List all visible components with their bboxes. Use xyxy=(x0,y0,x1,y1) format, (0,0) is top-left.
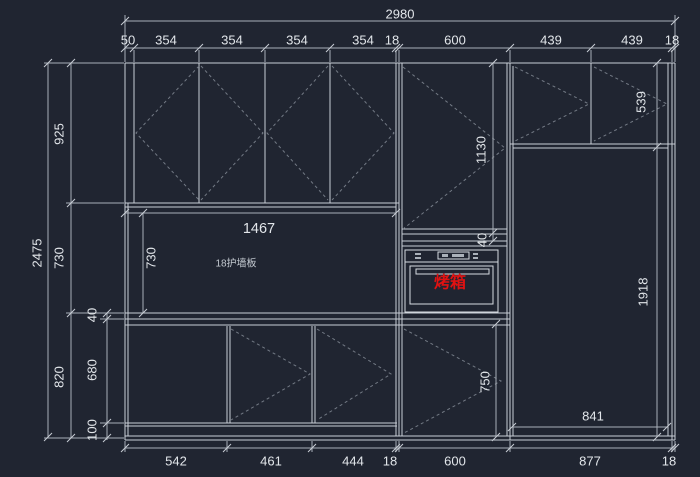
dim-left-100: 100 xyxy=(85,419,100,441)
oven-knob-left2 xyxy=(415,257,421,259)
dimension-lines xyxy=(44,15,679,452)
dim-bottom-461: 461 xyxy=(260,454,282,469)
dim-bottom-18-2: 18 xyxy=(662,454,676,469)
extension-lines xyxy=(44,15,675,452)
cabinet-outline xyxy=(125,63,675,440)
dim-bottom-542: 542 xyxy=(165,454,187,469)
dim-lines xyxy=(48,21,675,448)
oven-display-segment2 xyxy=(452,254,464,257)
dim-left-730: 730 xyxy=(52,247,67,269)
dim-left-40: 40 xyxy=(85,308,100,322)
dimension-labels: 2980 50 354 354 354 354 18 600 439 439 1… xyxy=(30,7,680,469)
oven-display-segment xyxy=(442,254,448,257)
dim-back-panel-width: 1467 xyxy=(243,221,275,237)
dim-top-354-3: 354 xyxy=(286,33,308,48)
cad-drawing: 2980 50 354 354 354 354 18 600 439 439 1… xyxy=(0,0,700,477)
dim-left-total: 2475 xyxy=(30,239,45,268)
dim-gap-40: 40 xyxy=(475,233,490,247)
dim-top-439-1: 439 xyxy=(540,33,562,48)
dim-total-width: 2980 xyxy=(386,7,415,22)
cabinet-structure xyxy=(125,63,675,440)
dimension-ticks xyxy=(44,17,679,452)
dim-base-right-750: 750 xyxy=(478,371,493,393)
oven-handle xyxy=(416,269,489,274)
dim-back-panel-height: 730 xyxy=(144,247,159,269)
dim-left-925: 925 xyxy=(52,123,67,145)
dim-tall-door: 1130 xyxy=(474,136,489,164)
dim-left-820: 820 xyxy=(52,366,67,388)
dim-upper-right-539: 539 xyxy=(634,91,649,113)
dim-top-354-1: 354 xyxy=(155,33,177,48)
dim-top-354-4: 354 xyxy=(352,33,374,48)
dim-top-600: 600 xyxy=(444,33,466,48)
dim-top-354-2: 354 xyxy=(221,33,243,48)
dim-top-18-2: 18 xyxy=(665,33,679,48)
dim-top-50: 50 xyxy=(121,33,135,48)
dim-bottom-444: 444 xyxy=(342,454,364,469)
dim-inner-width-841: 841 xyxy=(582,409,604,424)
label-oven: 烤箱 xyxy=(434,273,466,292)
dim-left-680: 680 xyxy=(85,359,100,381)
dim-top-439-2: 439 xyxy=(621,33,643,48)
label-wall-panel: 18护墙板 xyxy=(215,257,256,270)
oven-knob-right xyxy=(473,253,478,255)
dim-bottom-600: 600 xyxy=(444,454,466,469)
dim-bottom-18-1: 18 xyxy=(383,454,397,469)
dim-tall-right-1918: 1918 xyxy=(636,278,651,307)
dim-bottom-877: 877 xyxy=(579,454,601,469)
dim-top-18-1: 18 xyxy=(385,33,399,48)
oven-knob-left xyxy=(415,253,421,255)
oven-knob-right2 xyxy=(473,257,478,259)
